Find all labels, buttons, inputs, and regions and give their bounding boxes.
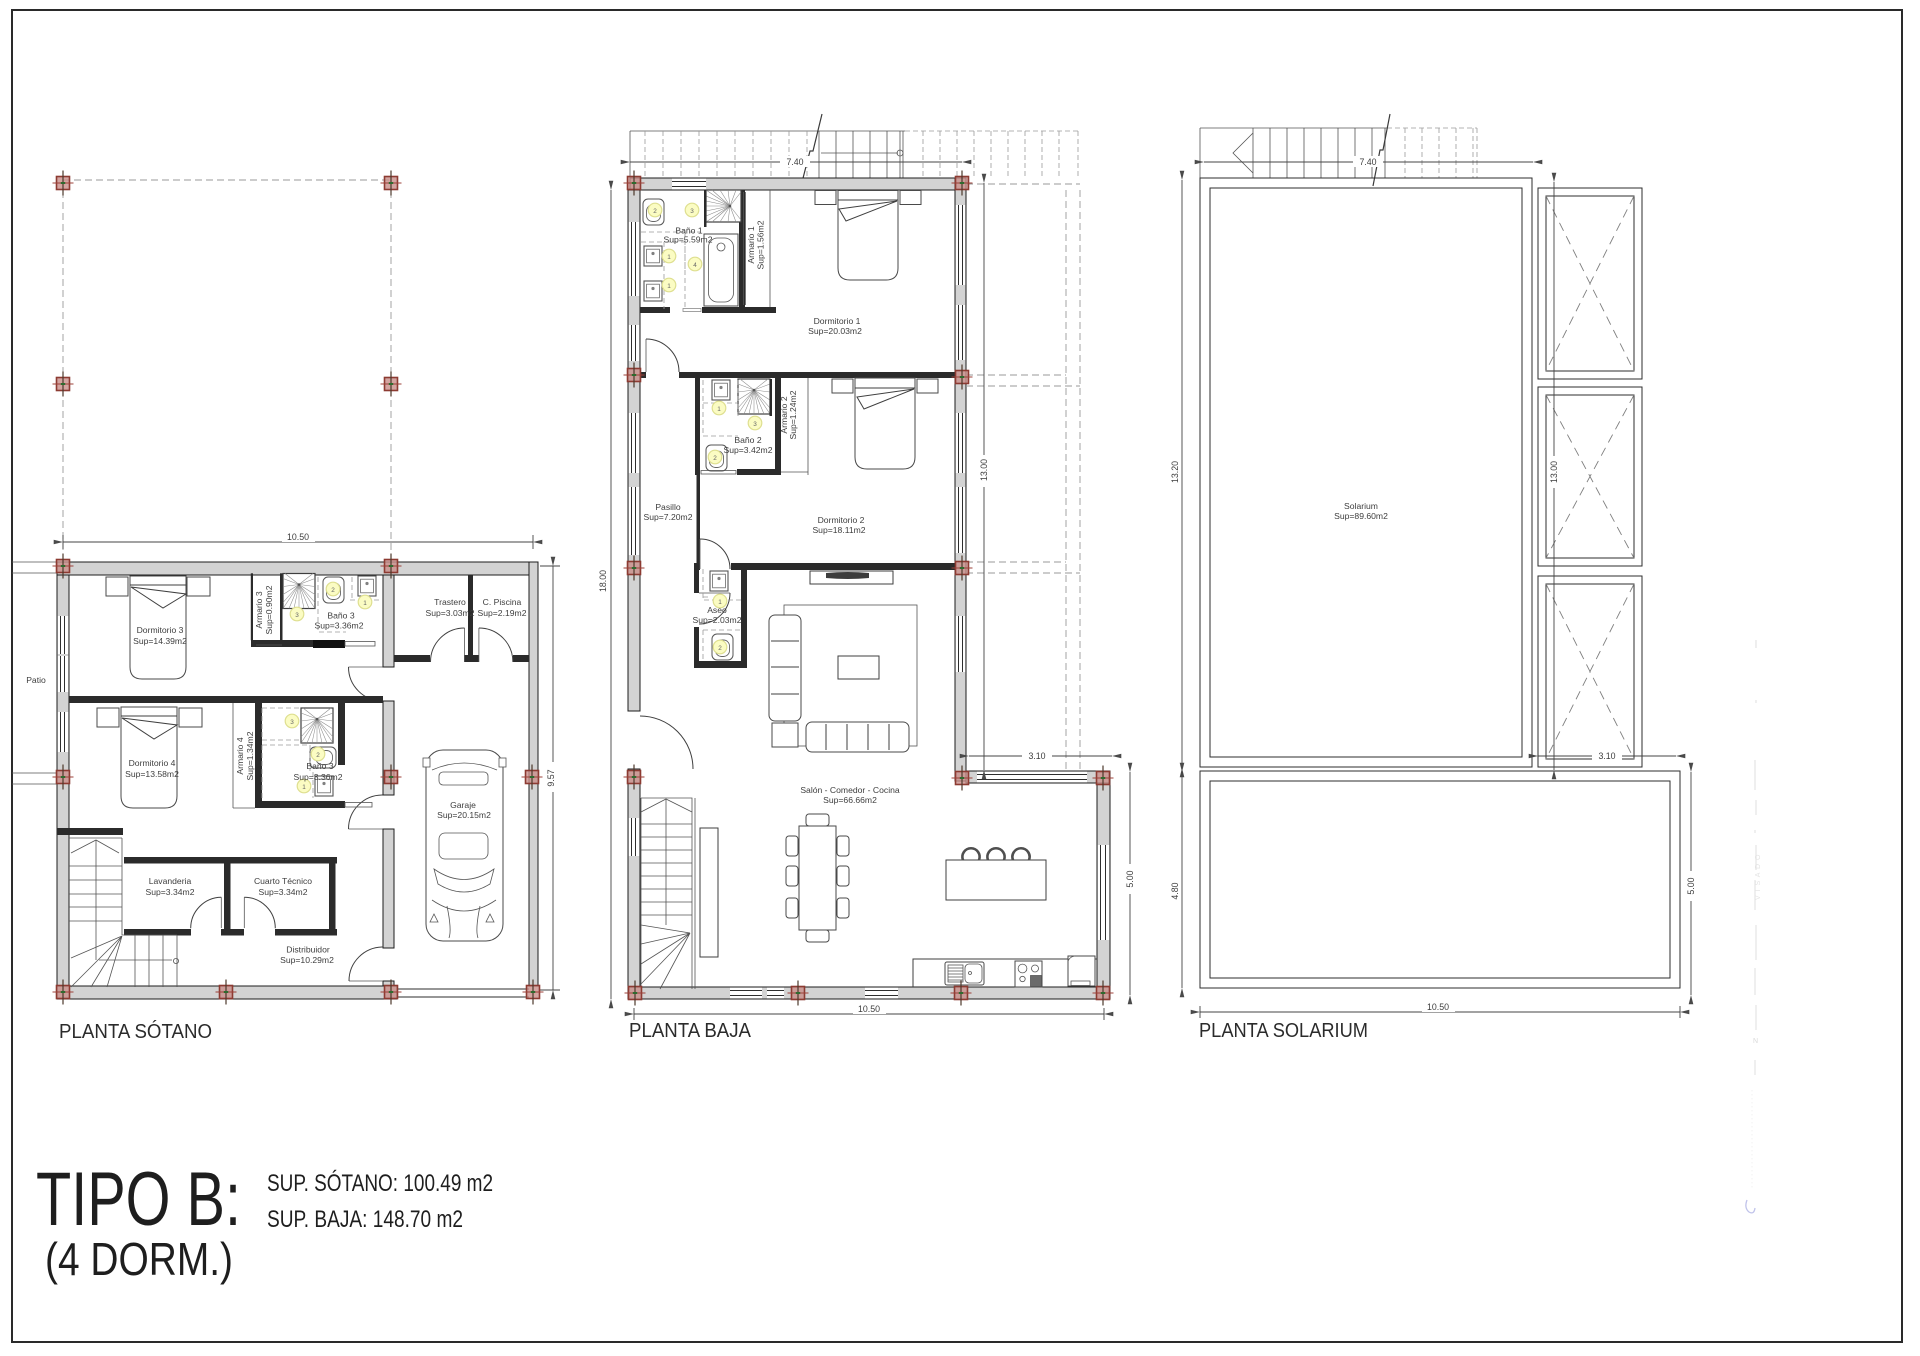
svg-text:2: 2 (713, 455, 717, 462)
svg-text:1: 1 (717, 406, 721, 413)
svg-text:13.00: 13.00 (979, 459, 989, 481)
svg-text:3: 3 (295, 612, 299, 619)
svg-text:1: 1 (667, 283, 671, 290)
svg-text:Sup=7.20m2: Sup=7.20m2 (644, 512, 693, 522)
svg-text:Sup=66.66m2: Sup=66.66m2 (823, 795, 877, 805)
svg-text:Sup=20.03m2: Sup=20.03m2 (808, 326, 862, 336)
svg-text:10.50: 10.50 (858, 1004, 880, 1014)
svg-text:Sup=3.42m2: Sup=3.42m2 (724, 445, 773, 455)
svg-text:4.80: 4.80 (1170, 882, 1180, 899)
svg-text:5.00: 5.00 (1686, 877, 1696, 894)
svg-text:Sup=18.11m2: Sup=18.11m2 (812, 525, 865, 535)
svg-text:Sup=1.56m2: Sup=1.56m2 (756, 220, 766, 269)
svg-text:PLANTA SOLARIUM: PLANTA SOLARIUM (1199, 1020, 1368, 1042)
svg-text:Sup=0.90m2: Sup=0.90m2 (264, 585, 274, 634)
svg-text:13.20: 13.20 (1170, 461, 1180, 483)
svg-text:Solarium: Solarium (1344, 501, 1378, 511)
svg-text:Baño 3: Baño 3 (327, 611, 354, 621)
svg-text:13.00: 13.00 (1549, 461, 1559, 483)
svg-text:TIPO B:: TIPO B: (36, 1157, 241, 1242)
svg-text:2: 2 (718, 645, 722, 652)
svg-text:Dormitorio 3: Dormitorio 3 (137, 625, 184, 635)
svg-text:Dormitorio 1: Dormitorio 1 (814, 316, 861, 326)
svg-text:Sup=13.58m2: Sup=13.58m2 (125, 769, 179, 779)
svg-text:C. Piscina: C. Piscina (483, 597, 522, 607)
svg-text:Lavanderia: Lavanderia (149, 876, 192, 886)
svg-text:Armario 1: Armario 1 (746, 226, 756, 263)
svg-text:(4 DORM.): (4 DORM.) (45, 1233, 233, 1285)
svg-text:Sup=3.36m2: Sup=3.36m2 (315, 621, 364, 631)
svg-text:Trastero: Trastero (434, 597, 466, 607)
svg-text:2: 2 (331, 587, 335, 594)
svg-text:Sup=3.34m2: Sup=3.34m2 (146, 887, 195, 897)
svg-text:Pasillo: Pasillo (655, 502, 681, 512)
svg-text:3: 3 (690, 208, 694, 215)
svg-text:Dormitorio 2: Dormitorio 2 (818, 515, 865, 525)
svg-text:Sup=2.19m2: Sup=2.19m2 (478, 608, 527, 618)
svg-text:Sup=5.59m2: Sup=5.59m2 (664, 235, 713, 245)
svg-text:Sup=14.39m2: Sup=14.39m2 (133, 636, 187, 646)
svg-text:Sup=89.60m2: Sup=89.60m2 (1334, 511, 1388, 521)
svg-text:Sup=1.24m2: Sup=1.24m2 (788, 390, 798, 439)
svg-text:Armario 3: Armario 3 (254, 591, 264, 628)
svg-text:7.40: 7.40 (786, 157, 803, 167)
svg-text:1: 1 (667, 254, 671, 261)
svg-text:10.50: 10.50 (1427, 1002, 1449, 1012)
svg-text:Salón - Comedor - Cocina: Salón - Comedor - Cocina (800, 785, 900, 795)
svg-text:V I S A D O: V I S A D O (1755, 854, 1762, 900)
svg-text:Dormitorio 4: Dormitorio 4 (129, 758, 176, 768)
svg-text:9.57: 9.57 (546, 769, 556, 786)
svg-text:Patio: Patio (26, 675, 46, 685)
svg-text:Sup=3.34m2: Sup=3.34m2 (259, 887, 308, 897)
svg-text:Baño 3: Baño 3 (306, 761, 333, 771)
svg-text:4: 4 (693, 262, 697, 269)
svg-text:3.10: 3.10 (1028, 751, 1045, 761)
svg-text:2: 2 (316, 752, 320, 759)
svg-text:1: 1 (363, 600, 367, 607)
svg-text:Garaje: Garaje (450, 800, 476, 810)
svg-text:Sup=20.15m2: Sup=20.15m2 (437, 810, 491, 820)
svg-text:7.40: 7.40 (1359, 157, 1376, 167)
svg-text:1: 1 (302, 784, 306, 791)
svg-text:3: 3 (290, 719, 294, 726)
svg-text:PLANTA SÓTANO: PLANTA SÓTANO (59, 1020, 212, 1043)
svg-text:3.10: 3.10 (1598, 751, 1615, 761)
svg-text:Sup=3.03m2: Sup=3.03m2 (426, 608, 475, 618)
svg-text:Sup=1.34m2: Sup=1.34m2 (245, 731, 255, 780)
svg-text:SUP. SÓTANO: 100.49 m2: SUP. SÓTANO: 100.49 m2 (267, 1170, 493, 1197)
svg-text:10.50: 10.50 (287, 532, 309, 542)
svg-text:Sup=2.03m2: Sup=2.03m2 (693, 615, 742, 625)
svg-text:2: 2 (653, 208, 657, 215)
svg-text:Sup=3.36m2: Sup=3.36m2 (294, 772, 343, 782)
svg-text:Distribuidor: Distribuidor (286, 945, 330, 955)
svg-text:Sup=10.29m2: Sup=10.29m2 (280, 955, 334, 965)
svg-text:Cuarto Técnico: Cuarto Técnico (254, 876, 312, 886)
svg-text:SUP. BAJA: 148.70 m2: SUP. BAJA: 148.70 m2 (267, 1206, 463, 1233)
svg-text:Baño 2: Baño 2 (734, 435, 761, 445)
svg-text:Armario 4: Armario 4 (235, 737, 245, 774)
svg-text:18.00: 18.00 (598, 570, 608, 592)
svg-text:PLANTA BAJA: PLANTA BAJA (629, 1020, 752, 1042)
svg-text:N: N (1753, 1038, 1758, 1045)
svg-text:Aseo: Aseo (707, 605, 727, 615)
svg-text:5.00: 5.00 (1125, 870, 1135, 887)
svg-text:3: 3 (753, 421, 757, 428)
